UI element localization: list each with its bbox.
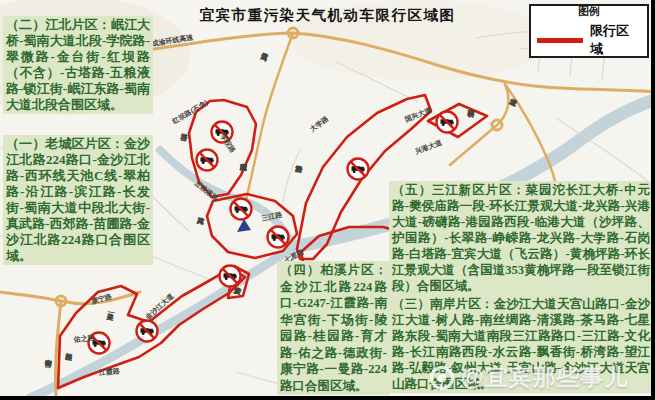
zone-text-baixi: （四）柏溪片区：金沙江北路224路口-G247-江霞路-南华宫街-下场街-陵园路… [277, 261, 390, 395]
watermark-text: @宜宾那些事儿 [461, 362, 628, 393]
restricted-zone-line-swatch [537, 38, 583, 43]
no-entry-truck-icon [231, 199, 252, 220]
no-entry-truck-icon [197, 150, 218, 171]
screenshot-root: 成渝环线高速银昆高速安白路红坝路(不含)古塔路学院路蜀南大道北段五粮液路大学路黄… [0, 0, 655, 400]
legend-title: 图例 [537, 4, 641, 19]
road-label: 南华宫街 [44, 359, 53, 369]
zone-text-jiangbei: （二）江北片区：岷江大桥-蜀南大道北段-学院路-翠微路-金台街-红坝路（不含）-… [3, 16, 153, 114]
legend-entry-label: 限行区域 [590, 22, 641, 58]
road-label: 桂园路 [63, 353, 73, 362]
legend-entry-restricted: 限行区域 [537, 22, 641, 58]
road-label: 金沙江大道 [143, 291, 176, 322]
road-label: 银昆高速 [258, 51, 270, 63]
road-label: 学院路 [218, 133, 237, 156]
road-label: 真武路 [195, 216, 206, 226]
road-label: 红坝路(不含) [170, 99, 209, 126]
legend-box: 图例 限行区域 [529, 4, 649, 58]
road-label: 大学路 [308, 114, 331, 133]
no-entry-truck-icon [437, 112, 458, 133]
road-label: 康宁路 [89, 291, 114, 306]
bottom-border-bar [0, 396, 655, 400]
road-label: 兴港大道 [413, 138, 444, 156]
zone-text-sanjiang: （五）三江新区片区：菜园沱长江大桥-中元路-樊侯庙路一段-环长江景观大道-龙兴路… [389, 181, 653, 295]
watermark: @宜宾那些事儿 [430, 362, 628, 393]
no-entry-truck-icon [137, 321, 158, 342]
no-entry-truck-icon [268, 227, 289, 248]
zone-text-laochengqu: （一）老城区片区：金沙江北路224路口-金沙江北路-西环线天池C线-翠柏路-沿江… [3, 135, 153, 265]
road-label: 一曼路 [105, 310, 116, 322]
blue-triangle-marker [237, 219, 251, 232]
no-entry-truck-icon [348, 159, 369, 180]
right-border-bar [651, 0, 655, 400]
no-entry-truck-icon [220, 266, 241, 287]
road-label: 江霞路 [97, 367, 121, 377]
road-label: 黄桷坪路 [293, 165, 303, 174]
watermark-logo-icon [430, 366, 454, 390]
road-label: 古塔路 [178, 132, 189, 143]
